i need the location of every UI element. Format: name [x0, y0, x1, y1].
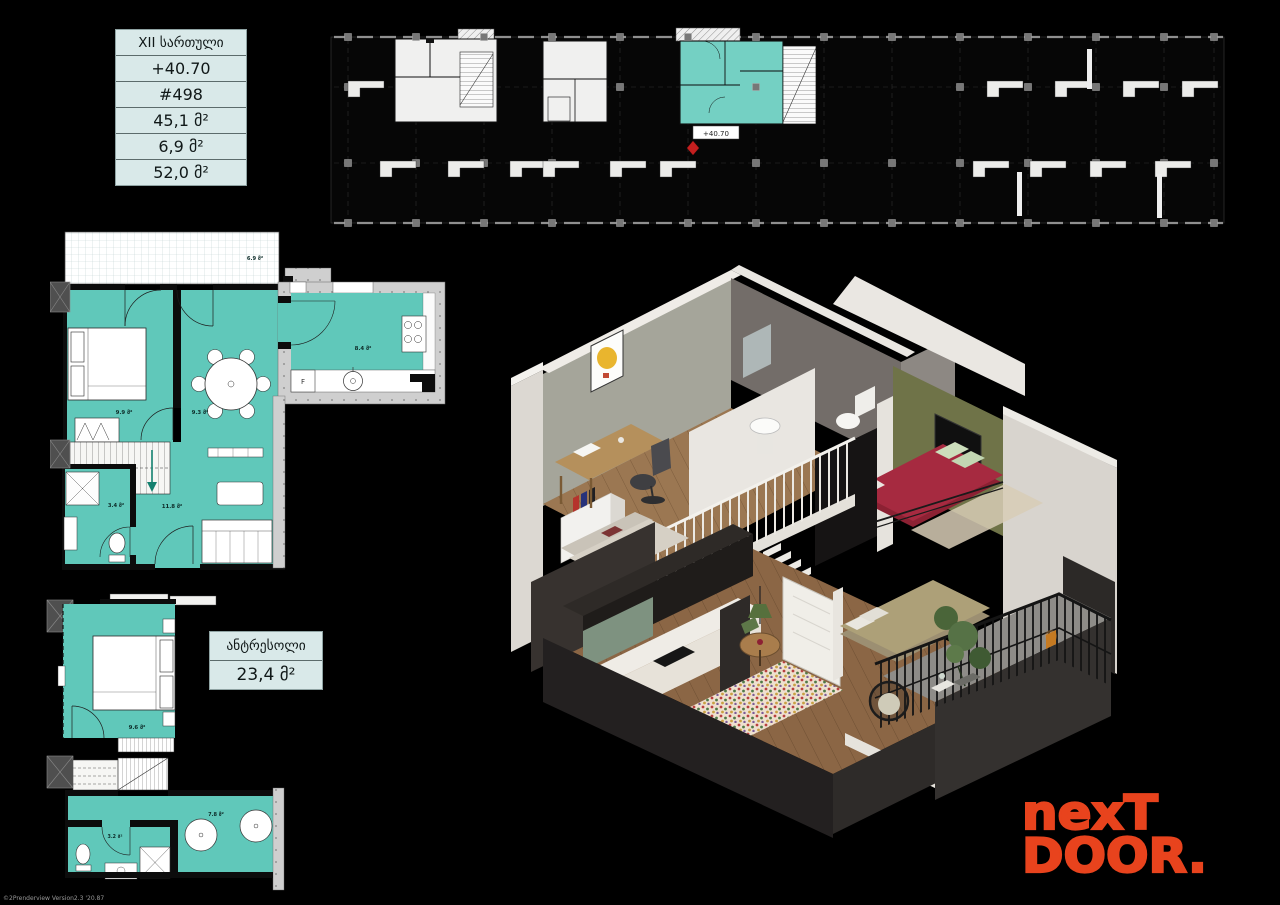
elevation-row: +40.70: [116, 56, 246, 82]
mezz-bedroom-area-label: 9.6 მ²: [129, 724, 146, 731]
plan-kitchen: F 8.4 მ²: [278, 282, 445, 404]
sofa-icon: [202, 520, 272, 563]
radiator-icon: [118, 738, 174, 752]
plan-bathroom: 3.4 მ²: [62, 464, 136, 570]
coffee-table-icon: [217, 482, 263, 505]
egg-chair: [870, 682, 908, 720]
fine-print: ©2Prenderview Version2.3 '20.87: [3, 895, 104, 902]
bed-icon: [68, 328, 146, 400]
plan-bedroom: 9.9 მ²: [63, 290, 173, 442]
shower-icon: [66, 472, 99, 505]
mezz-bedroom: 9.6 მ²: [58, 594, 216, 752]
fridge-label: F: [301, 378, 305, 386]
living-area-label: 11.8 მ²: [162, 503, 183, 510]
bathroom-area-label: 3.4 მ²: [108, 503, 124, 509]
plan-dining: 9.3 მ²: [177, 290, 289, 442]
dresser-icon: [208, 448, 263, 457]
unit-number: #498: [159, 85, 203, 104]
plan-top-wall: [63, 284, 285, 290]
isometric-render: [503, 246, 1135, 838]
main-floor-plan: 6.9 მ² 9.9 მ²: [50, 226, 448, 594]
logo-line-2: DOOR.: [1022, 835, 1207, 878]
closet-icon: [75, 418, 119, 442]
stove-icon: [402, 316, 426, 352]
toilet-icon: [109, 533, 125, 562]
mezzanine-floor-plan: 9.6 მ²: [42, 592, 294, 894]
kitchen-area-label: 8.4 მ²: [355, 345, 372, 352]
mezz-bed-icon: [93, 636, 175, 710]
plan-balcony: 6.9 მ²: [65, 232, 279, 284]
unit-elevation-text: +40.70: [703, 130, 729, 138]
dining-area-label: 9.3 მ²: [192, 409, 209, 416]
bedroom-area-label: 9.9 მ²: [116, 409, 133, 416]
balcony-area-value: 6,9 მ²: [158, 137, 203, 156]
floor-label: XII სართული: [138, 35, 223, 51]
unit-number-row: #498: [116, 82, 246, 108]
building-key-plan: +40.70: [330, 27, 1227, 229]
fridge-icon: F: [291, 370, 315, 392]
balcony-area-row: 6,9 მ²: [116, 134, 246, 160]
brochure-page: XII სართული +40.70 #498 45,1 მ² 6,9 მ² 5…: [0, 0, 1280, 905]
total-area-value: 52,0 მ²: [153, 163, 208, 182]
key-plan-unit-white-1: [395, 29, 497, 122]
mezz-stairs: [73, 758, 168, 790]
mezz-hall-area-label: 7.8 მ²: [208, 812, 224, 818]
mezz-toilet-icon: [76, 844, 91, 871]
living-area-row: 45,1 მ²: [116, 108, 246, 134]
brand-logo: nexT DOOR.: [1022, 792, 1207, 878]
balcony-area-label: 6.9 მ²: [247, 256, 263, 262]
bath-sink-icon: [64, 517, 77, 550]
living-area-value: 45,1 მ²: [153, 111, 208, 130]
elevation-value: +40.70: [151, 59, 210, 78]
unit-info-table: XII სართული +40.70 #498 45,1 მ² 6,9 მ² 5…: [115, 29, 247, 186]
total-area-row: 52,0 მ²: [116, 160, 246, 185]
key-plan-unit-white-2: [543, 41, 607, 122]
mezz-lower-level: 3.2 მ² 7.8 მ²: [65, 788, 284, 890]
mezz-bathroom-area-label: 3.2 მ²: [108, 834, 123, 840]
floor-row: XII სართული: [116, 30, 246, 56]
